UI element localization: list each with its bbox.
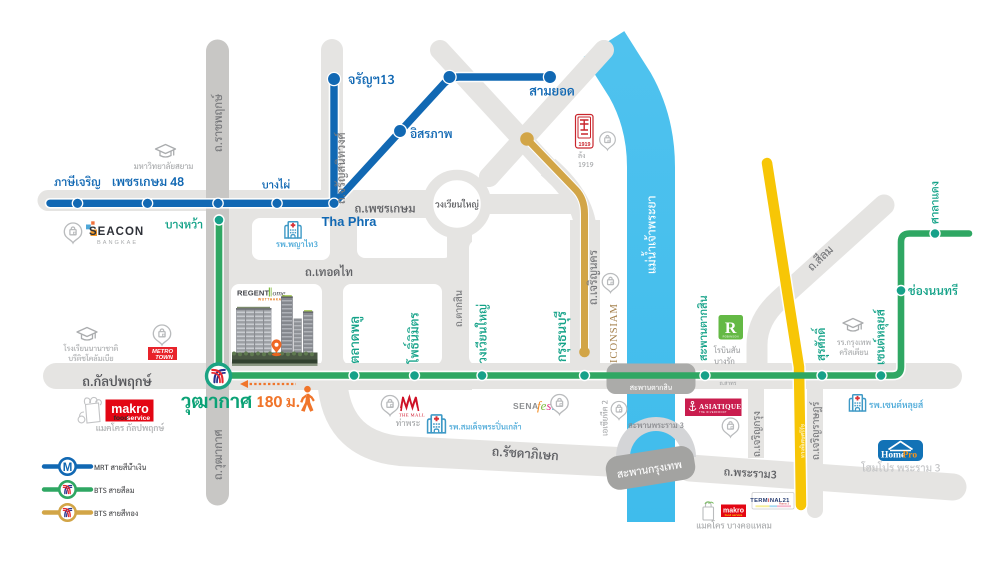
svg-text:Pro: Pro <box>903 451 918 461</box>
svg-text:THE MALL: THE MALL <box>399 413 425 418</box>
svg-text:1919: 1919 <box>579 142 591 148</box>
svg-text:ROBINSON: ROBINSON <box>723 335 739 339</box>
svg-text:ICONSIAM: ICONSIAM <box>608 303 620 363</box>
svg-text:ASIATIQUE: ASIATIQUE <box>699 403 742 411</box>
svg-text:SEACON: SEACON <box>89 226 144 238</box>
svg-text:SENA: SENA <box>513 401 539 411</box>
svg-text:THE RIVERFRONT: THE RIVERFRONT <box>699 411 727 414</box>
svg-text:food service: food service <box>725 513 743 517</box>
svg-text:Rama 3: Rama 3 <box>779 502 789 506</box>
svg-text:TOWN: TOWN <box>155 355 173 361</box>
svg-text:service: service <box>127 415 151 422</box>
svg-text:makro: makro <box>111 402 149 416</box>
svg-text:R: R <box>725 320 737 337</box>
svg-text:WUTTHAKAT: WUTTHAKAT <box>258 298 284 302</box>
svg-text:Tha Phra: Tha Phra <box>322 214 378 229</box>
svg-text:BANGKAE: BANGKAE <box>97 240 138 246</box>
svg-text:REGENT: REGENT <box>237 289 270 298</box>
svg-text:M: M <box>63 462 73 474</box>
